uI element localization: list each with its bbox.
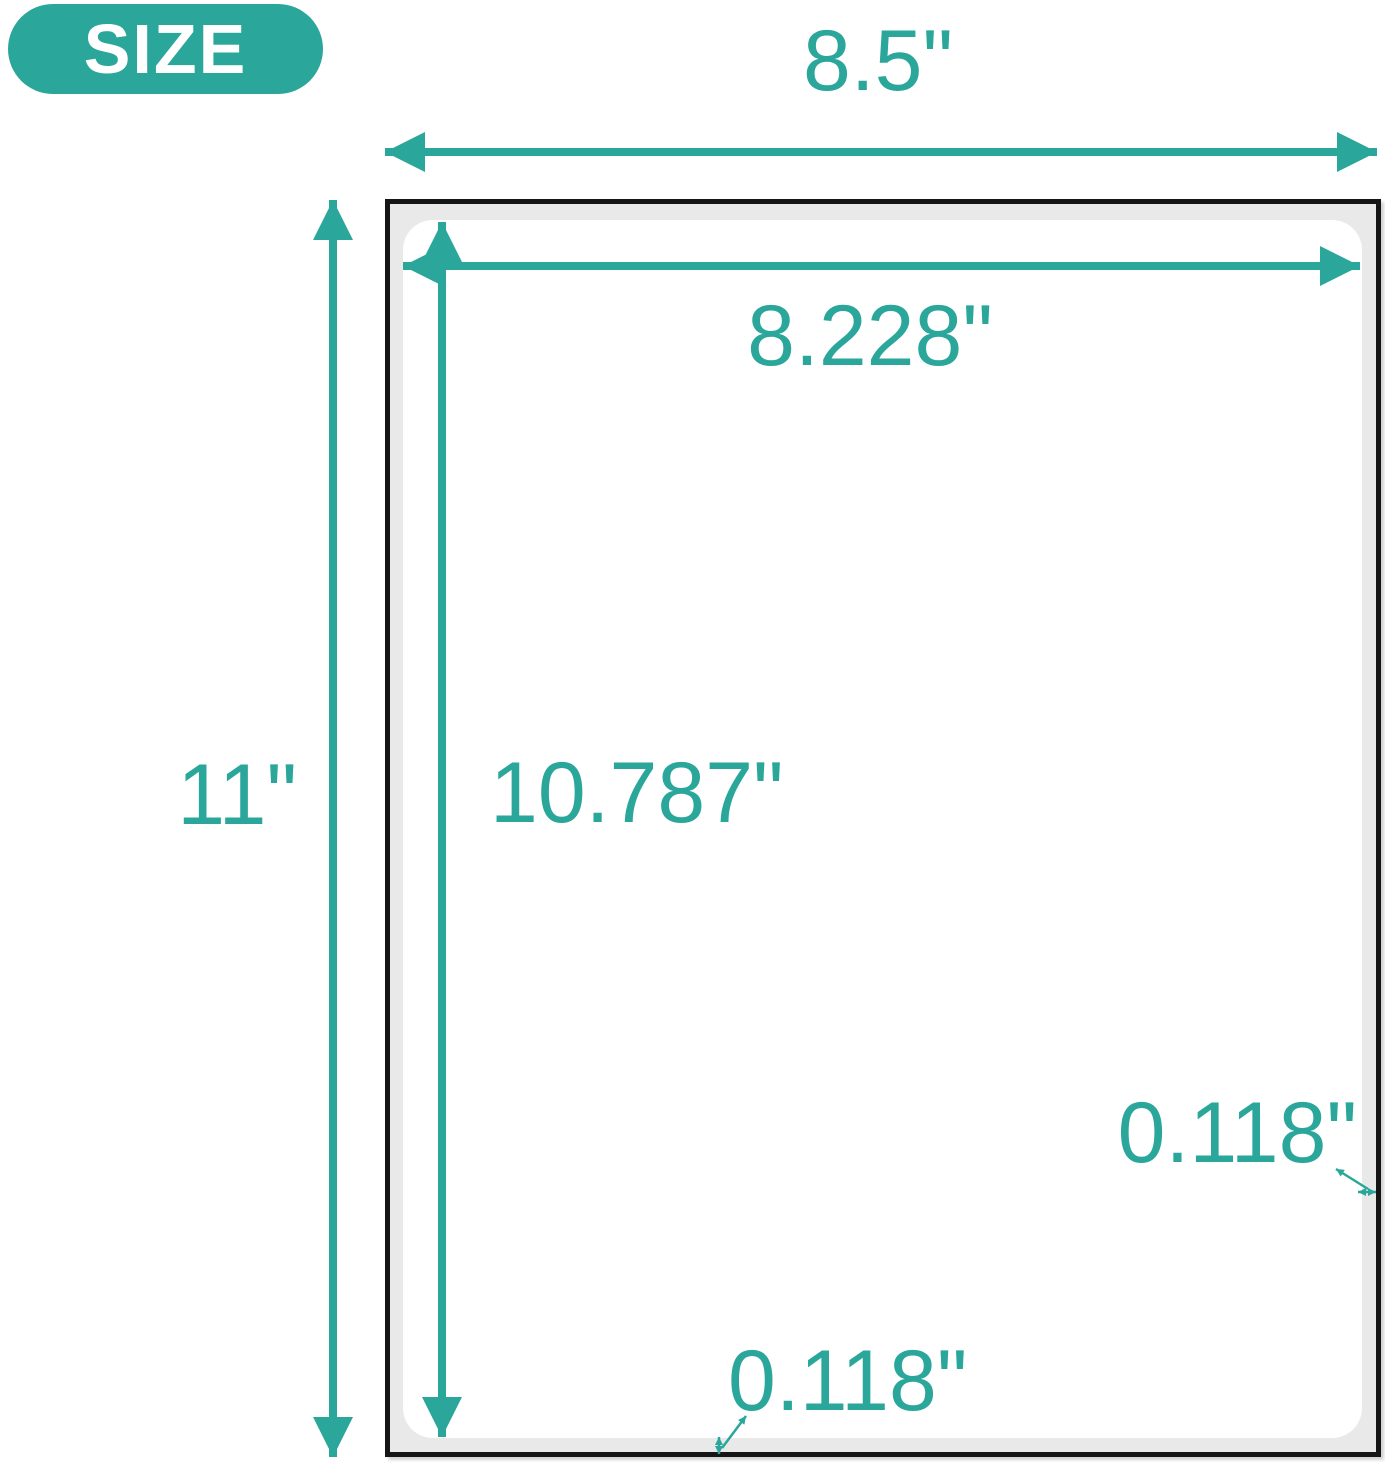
right-margin-label: 0.118" — [957, 1090, 1357, 1176]
size-badge: SIZE — [8, 4, 323, 94]
size-badge-label: SIZE — [84, 14, 248, 84]
print-area-width-label: 8.228" — [670, 293, 1070, 379]
sheet-height-label: 11" — [97, 752, 297, 838]
bottom-margin-label: 0.118" — [728, 1338, 967, 1424]
sheet-width-label: 8.5" — [678, 18, 1078, 104]
print-area-height-label: 10.787" — [490, 750, 784, 836]
size-diagram: SIZE 8.5" 8.228" 11" 10.787" 0. — [0, 0, 1385, 1471]
